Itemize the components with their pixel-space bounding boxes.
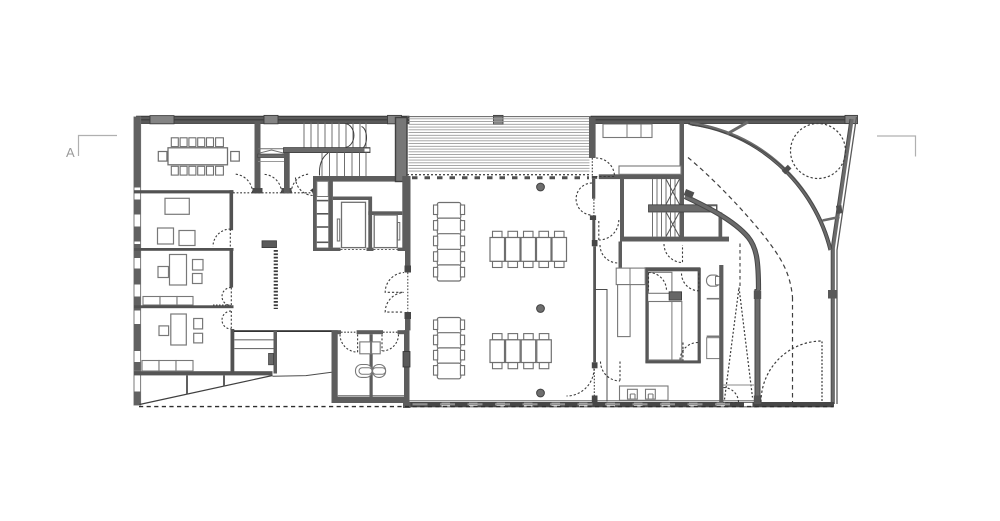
svg-text:A: A bbox=[66, 145, 75, 160]
